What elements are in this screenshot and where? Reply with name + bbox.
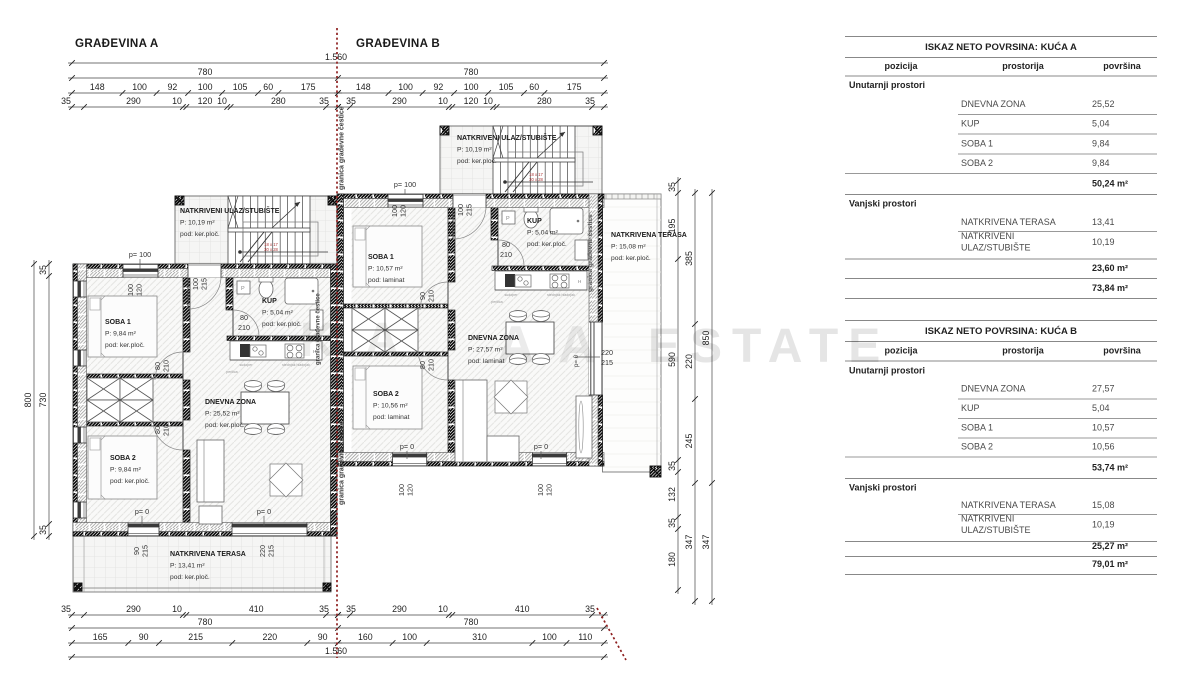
svg-text:ISKAZ NETO POVRSINA: KUĆA B: ISKAZ NETO POVRSINA: KUĆA B	[925, 325, 1077, 337]
svg-text:KA: KA	[300, 314, 429, 367]
svg-text:245: 245	[684, 434, 694, 449]
svg-text:92: 92	[167, 82, 177, 92]
svg-text:10: 10	[438, 604, 448, 614]
svg-text:280: 280	[271, 96, 286, 106]
svg-text:80: 80	[502, 240, 510, 249]
svg-text:P: 5,04 m²: P: 5,04 m²	[262, 310, 294, 317]
svg-text:SOBA 2: SOBA 2	[961, 158, 993, 168]
svg-text:pod: ker.ploč.: pod: ker.ploč.	[110, 478, 150, 485]
svg-text:30 x 28: 30 x 28	[264, 247, 278, 252]
svg-text:148: 148	[90, 82, 105, 92]
svg-text:280: 280	[537, 96, 552, 106]
svg-text:10: 10	[172, 604, 182, 614]
svg-text:NATKRIVENA TERASA: NATKRIVENA TERASA	[961, 500, 1056, 510]
svg-text:35: 35	[346, 96, 356, 106]
svg-text:105: 105	[499, 82, 514, 92]
svg-text:175: 175	[567, 82, 582, 92]
svg-text:73,84 m²: 73,84 m²	[1092, 283, 1128, 293]
svg-text:120: 120	[135, 284, 144, 296]
svg-text:10,57: 10,57	[1092, 423, 1115, 433]
svg-text:DNEVNA ZONA: DNEVNA ZONA	[961, 384, 1026, 394]
svg-text:NATKRIVENI ULAZ/STUBIŠTE: NATKRIVENI ULAZ/STUBIŠTE	[180, 206, 280, 215]
svg-text:p= 0: p= 0	[534, 442, 548, 451]
svg-text:pod: laminat: pod: laminat	[373, 414, 410, 421]
svg-text:H: H	[578, 279, 581, 284]
svg-text:GRAĐEVINA B: GRAĐEVINA B	[356, 37, 440, 50]
svg-text:25,52: 25,52	[1092, 99, 1115, 109]
svg-text:220: 220	[601, 348, 613, 357]
svg-text:1.560: 1.560	[325, 52, 347, 62]
svg-text:210: 210	[162, 360, 171, 372]
svg-text:165: 165	[93, 632, 108, 642]
svg-text:1.560: 1.560	[325, 646, 347, 656]
svg-text:GRAĐEVINA A: GRAĐEVINA A	[75, 37, 159, 50]
svg-text:NATKRIVENI: NATKRIVENI	[961, 231, 1014, 241]
svg-text:410: 410	[515, 604, 530, 614]
svg-text:pod: ker.ploč.: pod: ker.ploč.	[457, 158, 497, 165]
svg-text:ULAZ/STUBIŠTE: ULAZ/STUBIŠTE	[961, 525, 1031, 535]
svg-text:175: 175	[301, 82, 316, 92]
svg-text:35: 35	[585, 604, 595, 614]
svg-text:220: 220	[262, 632, 277, 642]
svg-text:pod: ker.ploč.: pod: ker.ploč.	[262, 321, 302, 328]
svg-text:NATKRIVENI ULAZ/STUBIŠTE: NATKRIVENI ULAZ/STUBIŠTE	[457, 133, 557, 142]
svg-text:347: 347	[684, 535, 694, 550]
svg-text:60: 60	[529, 82, 539, 92]
svg-text:P: 10,19 m²: P: 10,19 m²	[180, 220, 215, 227]
svg-text:25,27 m²: 25,27 m²	[1092, 541, 1128, 551]
svg-text:P: 10,19 m²: P: 10,19 m²	[457, 147, 492, 154]
svg-text:perilica: perilica	[226, 370, 237, 374]
svg-text:90: 90	[318, 632, 328, 642]
svg-text:pod: ker.ploč.: pod: ker.ploč.	[180, 231, 220, 238]
svg-text:35: 35	[38, 265, 48, 275]
svg-text:35: 35	[667, 182, 677, 192]
svg-text:800: 800	[23, 393, 33, 408]
svg-text:p= 0: p= 0	[400, 442, 414, 451]
svg-text:prostorija: prostorija	[1002, 61, 1045, 71]
svg-text:SOBA 1: SOBA 1	[105, 319, 131, 326]
svg-text:120: 120	[464, 96, 479, 106]
svg-text:35: 35	[346, 604, 356, 614]
svg-text:385: 385	[684, 251, 694, 266]
svg-text:P: 15,08 m²: P: 15,08 m²	[611, 244, 646, 251]
svg-text:p= 100: p= 100	[394, 180, 416, 189]
svg-text:53,74 m²: 53,74 m²	[1092, 463, 1128, 473]
svg-text:sudoper: sudoper	[240, 363, 254, 367]
svg-text:60: 60	[263, 82, 273, 92]
svg-text:stednjak hladnjak: stednjak hladnjak	[547, 293, 575, 297]
svg-text:90: 90	[139, 632, 149, 642]
svg-text:120: 120	[198, 96, 213, 106]
svg-text:10: 10	[438, 96, 448, 106]
svg-text:120: 120	[406, 484, 415, 496]
svg-text:SOBA 2: SOBA 2	[961, 442, 993, 452]
svg-text:pod: ker.ploč.: pod: ker.ploč.	[170, 574, 210, 581]
svg-text:35: 35	[585, 96, 595, 106]
svg-text:granica građevne čestice: granica građevne čestice	[587, 214, 594, 292]
svg-text:215: 215	[188, 632, 203, 642]
svg-text:10,19: 10,19	[1092, 520, 1115, 530]
svg-text:SOBA 1: SOBA 1	[961, 139, 993, 149]
svg-text:KUP: KUP	[961, 119, 980, 129]
svg-text:160: 160	[358, 632, 373, 642]
svg-text:100: 100	[398, 82, 413, 92]
svg-text:KUP: KUP	[961, 403, 980, 413]
svg-text:SOBA 1: SOBA 1	[368, 254, 394, 261]
svg-text:35: 35	[38, 525, 48, 535]
svg-text:780: 780	[198, 617, 213, 627]
svg-text:215: 215	[465, 204, 474, 216]
svg-text:Vanjski prostori: Vanjski prostori	[849, 483, 917, 493]
svg-text:410: 410	[249, 604, 264, 614]
svg-text:p= 100: p= 100	[129, 250, 151, 259]
svg-text:110: 110	[578, 632, 592, 642]
svg-text:SOBA 2: SOBA 2	[110, 455, 136, 462]
svg-text:120: 120	[545, 484, 554, 496]
svg-text:površina: površina	[1103, 61, 1142, 71]
svg-text:780: 780	[464, 617, 479, 627]
svg-text:5,04: 5,04	[1092, 403, 1110, 413]
svg-text:sudoper: sudoper	[505, 293, 519, 297]
svg-text:9,84: 9,84	[1092, 139, 1110, 149]
svg-text:215: 215	[267, 545, 276, 557]
svg-text:5,04: 5,04	[1092, 119, 1110, 129]
svg-text:23,60 m²: 23,60 m²	[1092, 263, 1128, 273]
svg-text:DNEVNA ZONA: DNEVNA ZONA	[961, 99, 1026, 109]
svg-text:Vanjski prostori: Vanjski prostori	[849, 199, 917, 209]
svg-text:35: 35	[667, 518, 677, 528]
svg-text:79,01 m²: 79,01 m²	[1092, 559, 1128, 569]
svg-text:27,57: 27,57	[1092, 384, 1115, 394]
svg-text:P: 10,56 m²: P: 10,56 m²	[373, 403, 408, 410]
svg-text:210: 210	[162, 424, 171, 436]
svg-text:NATKRIVENI: NATKRIVENI	[961, 514, 1014, 524]
svg-text:DNEVNA ZONA: DNEVNA ZONA	[205, 399, 256, 406]
svg-text:35: 35	[667, 461, 677, 471]
svg-text:površina: površina	[1103, 346, 1142, 356]
svg-text:NATKRIVENA TERASA: NATKRIVENA TERASA	[170, 551, 246, 558]
svg-text:210: 210	[427, 290, 436, 302]
svg-text:730: 730	[38, 393, 48, 408]
svg-text:granica građevne čestice: granica građevne čestice	[339, 421, 346, 505]
svg-text:SOBA 1: SOBA 1	[961, 423, 993, 433]
svg-text:perilica: perilica	[491, 300, 502, 304]
svg-text:120: 120	[399, 205, 408, 217]
svg-text:100: 100	[464, 82, 479, 92]
svg-text:P: 9,84 m²: P: 9,84 m²	[105, 331, 137, 338]
svg-text:prostorija: prostorija	[1002, 346, 1045, 356]
svg-text:pozicija: pozicija	[884, 61, 918, 71]
svg-text:290: 290	[392, 96, 407, 106]
svg-text:Unutarnji prostori: Unutarnji prostori	[849, 80, 925, 90]
svg-text:10,19: 10,19	[1092, 237, 1115, 247]
svg-text:10: 10	[217, 96, 227, 106]
svg-text:ISKAZ NETO POVRSINA: KUĆA A: ISKAZ NETO POVRSINA: KUĆA A	[925, 41, 1077, 53]
svg-text:35: 35	[319, 96, 329, 106]
svg-text:100: 100	[542, 632, 557, 642]
svg-text:780: 780	[464, 67, 479, 77]
svg-text:9,84: 9,84	[1092, 158, 1110, 168]
svg-text:15,08: 15,08	[1092, 500, 1115, 510]
svg-text:P: 9,84 m²: P: 9,84 m²	[110, 467, 142, 474]
svg-text:780: 780	[198, 67, 213, 77]
svg-text:92: 92	[433, 82, 443, 92]
svg-text:SOBA 2: SOBA 2	[373, 391, 399, 398]
svg-text:P: 10,57 m²: P: 10,57 m²	[368, 266, 403, 273]
svg-text:KUP: KUP	[262, 298, 277, 305]
svg-text:A: A	[497, 316, 535, 374]
svg-text:A: A	[558, 316, 596, 374]
svg-text:P: 25,52 m²: P: 25,52 m²	[205, 411, 240, 418]
svg-text:NATKRIVENA TERASA: NATKRIVENA TERASA	[961, 217, 1056, 227]
svg-text:215: 215	[200, 278, 209, 290]
svg-text:pod: laminat: pod: laminat	[368, 277, 405, 284]
svg-text:100: 100	[402, 632, 417, 642]
svg-text:13,41: 13,41	[1092, 217, 1115, 227]
svg-text:ESTATE: ESTATE	[648, 320, 890, 373]
svg-text:pod: ker.ploč.: pod: ker.ploč.	[527, 241, 567, 248]
svg-text:35: 35	[61, 96, 71, 106]
svg-text:290: 290	[126, 604, 141, 614]
svg-text:210: 210	[500, 250, 512, 259]
svg-text:148: 148	[356, 82, 371, 92]
svg-text:215: 215	[601, 358, 613, 367]
svg-text:132: 132	[667, 487, 677, 502]
svg-text:180: 180	[667, 552, 677, 567]
svg-text:347: 347	[701, 535, 711, 550]
svg-text:pod: ker.ploč.: pod: ker.ploč.	[105, 342, 145, 349]
svg-text:pod: ker.ploč.: pod: ker.ploč.	[611, 255, 651, 262]
svg-text:100: 100	[132, 82, 147, 92]
svg-text:50,24 m²: 50,24 m²	[1092, 179, 1128, 189]
svg-text:10: 10	[483, 96, 493, 106]
svg-text:P: 5,04 m²: P: 5,04 m²	[527, 230, 559, 237]
svg-text:35: 35	[319, 604, 329, 614]
svg-text:215: 215	[141, 545, 150, 557]
svg-text:pod: ker.ploč.: pod: ker.ploč.	[205, 422, 245, 429]
svg-text:p= 0: p= 0	[257, 507, 271, 516]
svg-text:NATKRIVENA TERASA: NATKRIVENA TERASA	[611, 232, 687, 239]
svg-text:P: P	[241, 286, 245, 292]
svg-text:30 x 28: 30 x 28	[529, 177, 543, 182]
svg-text:10: 10	[172, 96, 182, 106]
svg-text:105: 105	[233, 82, 248, 92]
svg-text:granica građevne čestice: granica građevne čestice	[339, 106, 346, 190]
svg-text:310: 310	[472, 632, 487, 642]
svg-text:80: 80	[240, 313, 248, 322]
svg-text:290: 290	[126, 96, 141, 106]
svg-text:210: 210	[238, 323, 250, 332]
svg-text:10,56: 10,56	[1092, 442, 1115, 452]
svg-text:ULAZ/STUBIŠTE: ULAZ/STUBIŠTE	[961, 243, 1031, 253]
svg-text:KUP: KUP	[527, 218, 542, 225]
svg-text:P: 13,41 m²: P: 13,41 m²	[170, 563, 205, 570]
svg-text:p= 0: p= 0	[135, 507, 149, 516]
svg-text:290: 290	[392, 604, 407, 614]
svg-text:35: 35	[61, 604, 71, 614]
svg-text:P: P	[506, 216, 510, 222]
svg-text:100: 100	[198, 82, 213, 92]
